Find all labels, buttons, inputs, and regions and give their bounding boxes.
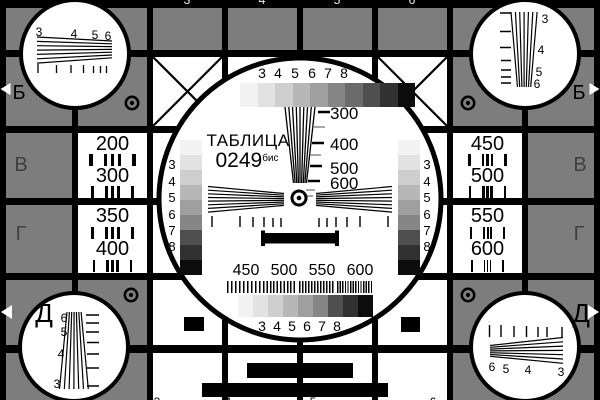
clipped-digit: 5 bbox=[310, 396, 317, 400]
wedge-label: 300 bbox=[330, 105, 358, 122]
gray-step bbox=[283, 295, 298, 317]
gray-label: 7 bbox=[168, 224, 175, 237]
corner-circle-top-right bbox=[471, 0, 579, 108]
wedge-label: 400 bbox=[330, 136, 358, 153]
frequency-label: 500 bbox=[271, 263, 298, 279]
frequency-value: 200 bbox=[96, 134, 129, 154]
frequency-label: 600 bbox=[347, 263, 374, 279]
gray-step bbox=[180, 230, 202, 245]
frequency-value: 350 bbox=[96, 206, 129, 226]
corner-label: 6 bbox=[489, 361, 496, 373]
gray-label: 3 bbox=[258, 66, 266, 80]
test-pattern-graphics bbox=[0, 0, 600, 400]
row-letter-left: Г bbox=[16, 224, 27, 244]
gray-step bbox=[180, 185, 202, 200]
gray-step bbox=[180, 245, 202, 260]
frequency-value: 600 bbox=[471, 239, 504, 259]
burst-marks bbox=[469, 186, 506, 198]
gray-label: 8 bbox=[168, 240, 175, 253]
corner-label: 4 bbox=[58, 348, 65, 360]
frequency-grating-450 bbox=[227, 281, 261, 293]
gray-label: 4 bbox=[273, 319, 281, 333]
grayscale-staircase-right bbox=[398, 140, 420, 275]
arrow-right-icon bbox=[590, 83, 600, 95]
card-number-suffix: бис bbox=[262, 153, 278, 164]
gray-step bbox=[180, 200, 202, 215]
frequency-grating-550 bbox=[299, 281, 335, 293]
burst-cell-right-bottom: 550 600 bbox=[453, 206, 522, 272]
gray-step bbox=[313, 295, 328, 317]
gray-step bbox=[328, 295, 343, 317]
gray-label: 6 bbox=[423, 208, 430, 221]
gray-step bbox=[398, 260, 420, 275]
burst-marks bbox=[470, 227, 505, 239]
gray-step bbox=[275, 83, 293, 107]
corner-label: 5 bbox=[61, 326, 68, 338]
card-number-main: 0249 bbox=[215, 149, 262, 172]
gray-step bbox=[298, 295, 313, 317]
gray-step bbox=[380, 83, 398, 107]
corner-label: 6 bbox=[61, 312, 68, 324]
corner-label: 3 bbox=[36, 26, 43, 38]
gray-step bbox=[398, 230, 420, 245]
row-letter-left: В bbox=[14, 155, 27, 175]
card-number: 0249бис bbox=[215, 150, 278, 171]
burst-cell-right-top: 450 500 bbox=[453, 134, 522, 197]
gray-step bbox=[180, 155, 202, 170]
clipped-digit: 4 bbox=[225, 396, 232, 400]
corner-label: 4 bbox=[525, 364, 532, 376]
gray-label: 3 bbox=[168, 158, 175, 171]
gray-step bbox=[363, 83, 381, 107]
wedge-label: 600 bbox=[330, 175, 358, 192]
gray-label: 6 bbox=[308, 66, 316, 80]
frequency-value: 450 bbox=[471, 134, 504, 154]
gray-label: 6 bbox=[168, 208, 175, 221]
gray-step bbox=[398, 170, 420, 185]
frequency-grating-500 bbox=[263, 281, 297, 293]
arrow-left-icon bbox=[1, 83, 11, 95]
gray-step bbox=[238, 295, 253, 317]
gray-step bbox=[293, 83, 311, 107]
burst-marks bbox=[471, 260, 505, 272]
gray-label: 3 bbox=[258, 319, 266, 333]
burst-marks bbox=[93, 260, 133, 272]
corner-label: 6 bbox=[105, 30, 112, 42]
row-letter-left: Б bbox=[12, 83, 25, 103]
burst-cell-left-top: 200 300 bbox=[78, 134, 147, 197]
gray-step bbox=[180, 140, 202, 155]
corner-label: 4 bbox=[538, 44, 545, 56]
gray-label: 3 bbox=[423, 158, 430, 171]
frequency-value: 300 bbox=[96, 166, 129, 186]
burst-marks bbox=[91, 186, 134, 198]
burst-marks bbox=[91, 227, 134, 239]
gray-label: 7 bbox=[324, 66, 332, 80]
gray-step bbox=[398, 200, 420, 215]
gray-step bbox=[343, 295, 358, 317]
frequency-label: 550 bbox=[309, 263, 336, 279]
gray-step bbox=[268, 295, 283, 317]
gray-step bbox=[253, 295, 268, 317]
gray-step bbox=[398, 155, 420, 170]
gray-label: 4 bbox=[168, 175, 175, 188]
gray-label: 8 bbox=[333, 319, 341, 333]
gray-label: 4 bbox=[274, 66, 282, 80]
black-square-right bbox=[401, 317, 420, 332]
gray-label: 6 bbox=[303, 319, 311, 333]
tv-test-card: 3 4 5 6 bbox=[0, 0, 600, 400]
row-letter-right: В bbox=[573, 155, 586, 175]
frequency-value: 550 bbox=[471, 206, 504, 226]
definition-bar-short bbox=[247, 363, 353, 378]
gray-step bbox=[180, 260, 202, 275]
corner-label: 3 bbox=[558, 366, 565, 378]
gray-label: 4 bbox=[423, 175, 430, 188]
corner-label: 4 bbox=[71, 28, 78, 40]
gray-step bbox=[398, 185, 420, 200]
gray-step bbox=[398, 140, 420, 155]
gray-step bbox=[398, 215, 420, 230]
clipped-digit: 3 bbox=[154, 396, 161, 400]
gray-step bbox=[398, 83, 416, 107]
frequency-label: 450 bbox=[233, 263, 260, 279]
gray-step bbox=[240, 83, 258, 107]
grayscale-staircase-left bbox=[180, 140, 202, 275]
gray-label: 5 bbox=[168, 191, 175, 204]
gray-label: 7 bbox=[423, 224, 430, 237]
gray-step bbox=[310, 83, 328, 107]
gray-step bbox=[258, 83, 276, 107]
gray-step bbox=[180, 170, 202, 185]
frequency-grating-600 bbox=[337, 281, 373, 293]
corner-label: 3 bbox=[542, 13, 549, 25]
row-letter-right: Д bbox=[572, 300, 590, 326]
grayscale-staircase-bottom bbox=[238, 295, 373, 317]
black-square-left bbox=[184, 317, 204, 331]
row-letter-left: Д bbox=[35, 300, 53, 326]
row-letter-right: Б bbox=[572, 83, 585, 103]
corner-label: 5 bbox=[92, 29, 99, 41]
burst-cell-left-bottom: 350 400 bbox=[78, 206, 147, 272]
corner-label: 3 bbox=[54, 378, 61, 390]
gray-label: 5 bbox=[291, 66, 299, 80]
gray-step bbox=[180, 215, 202, 230]
clipped-digit: 6 bbox=[430, 396, 437, 400]
arrow-left-icon bbox=[1, 305, 12, 319]
gray-label: 8 bbox=[423, 240, 430, 253]
corner-label: 5 bbox=[503, 363, 510, 375]
center-bullseye-dot bbox=[297, 196, 302, 201]
corner-label: 6 bbox=[534, 78, 541, 90]
frequency-value: 500 bbox=[471, 166, 504, 186]
gray-step bbox=[358, 295, 373, 317]
gray-label: 5 bbox=[423, 191, 430, 204]
frequency-value: 400 bbox=[96, 239, 129, 259]
gray-label: 7 bbox=[318, 319, 326, 333]
gray-step bbox=[398, 245, 420, 260]
grayscale-staircase-top bbox=[240, 83, 415, 107]
gray-label: 5 bbox=[288, 319, 296, 333]
gray-label: 8 bbox=[340, 66, 348, 80]
card-title: ТАБЛИЦА bbox=[206, 132, 289, 149]
row-letter-right: Г bbox=[574, 224, 585, 244]
